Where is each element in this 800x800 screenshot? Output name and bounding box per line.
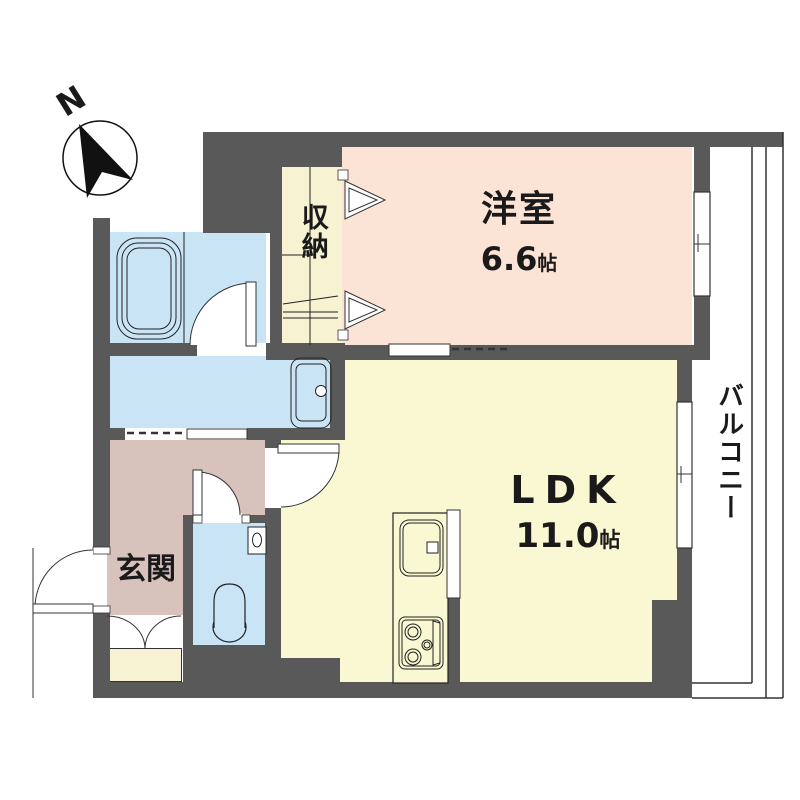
ldk-door — [265, 444, 339, 508]
closet-doors — [338, 170, 385, 340]
fixtures-layer — [0, 0, 800, 800]
washroom-sliding-door — [125, 428, 247, 440]
compass-needle — [79, 124, 133, 198]
ldk-window — [677, 402, 692, 548]
shoe-cabinet-doors — [107, 616, 181, 649]
bathroom-door — [190, 282, 266, 356]
ldk-label: LDK — [468, 470, 668, 512]
western-room-label: 洋室 — [419, 190, 619, 230]
washbasin — [291, 358, 331, 428]
balcony-label: バルコニー — [714, 382, 743, 522]
compass — [63, 121, 137, 198]
entrance-label: 玄関 — [96, 553, 196, 586]
closet-label: 収納 — [297, 203, 327, 261]
toilet-door — [193, 470, 250, 523]
ldk-size: 11.0帖 — [468, 518, 668, 555]
toilet-tank — [248, 527, 266, 554]
floor-plan: N 洋室 6.6帖 LDK 11.0帖 収納 バルコニー 玄関 — [0, 0, 800, 800]
bathtub — [117, 232, 184, 343]
bedroom-sliding-door — [389, 344, 510, 356]
toilet-bowl — [213, 584, 246, 642]
western-room-size: 6.6帖 — [419, 242, 619, 277]
bedroom-window — [694, 192, 710, 296]
